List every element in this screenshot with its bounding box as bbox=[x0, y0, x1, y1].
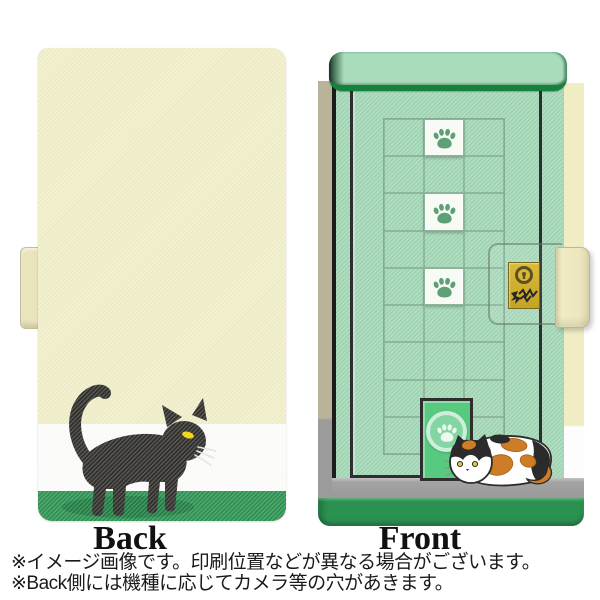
back-label: Back bbox=[30, 522, 230, 556]
paw-print-icon bbox=[431, 199, 458, 226]
back-cream-band bbox=[38, 48, 286, 424]
case-spine bbox=[318, 81, 332, 498]
product-image: { "labels": { "back": "Back", "front": "… bbox=[0, 0, 600, 600]
door-awning-bar bbox=[329, 52, 567, 91]
front-cover bbox=[318, 52, 584, 526]
clasp-flap-outline bbox=[488, 243, 562, 325]
calico-cat-icon bbox=[444, 431, 556, 489]
paw-print-icon bbox=[431, 273, 458, 300]
paw-tile bbox=[424, 119, 464, 156]
footnote-line-1: ※イメージ画像です。印刷位置などが異なる場合がございます。 bbox=[11, 552, 600, 573]
clasp-strap bbox=[555, 247, 590, 328]
paw-tile bbox=[424, 268, 464, 305]
black-cat-icon bbox=[56, 383, 216, 521]
paw-print-icon bbox=[431, 124, 458, 151]
back-cover bbox=[38, 48, 286, 521]
footnote-line-2: ※Back側には機種に応じてカメラ等の穴があきます。 bbox=[11, 573, 600, 594]
paw-tile bbox=[424, 193, 464, 230]
front-label: Front bbox=[320, 522, 520, 556]
footnotes: ※イメージ画像です。印刷位置などが異なる場合がございます。 ※Back側には機種… bbox=[11, 552, 600, 594]
front-green-base bbox=[318, 498, 584, 526]
